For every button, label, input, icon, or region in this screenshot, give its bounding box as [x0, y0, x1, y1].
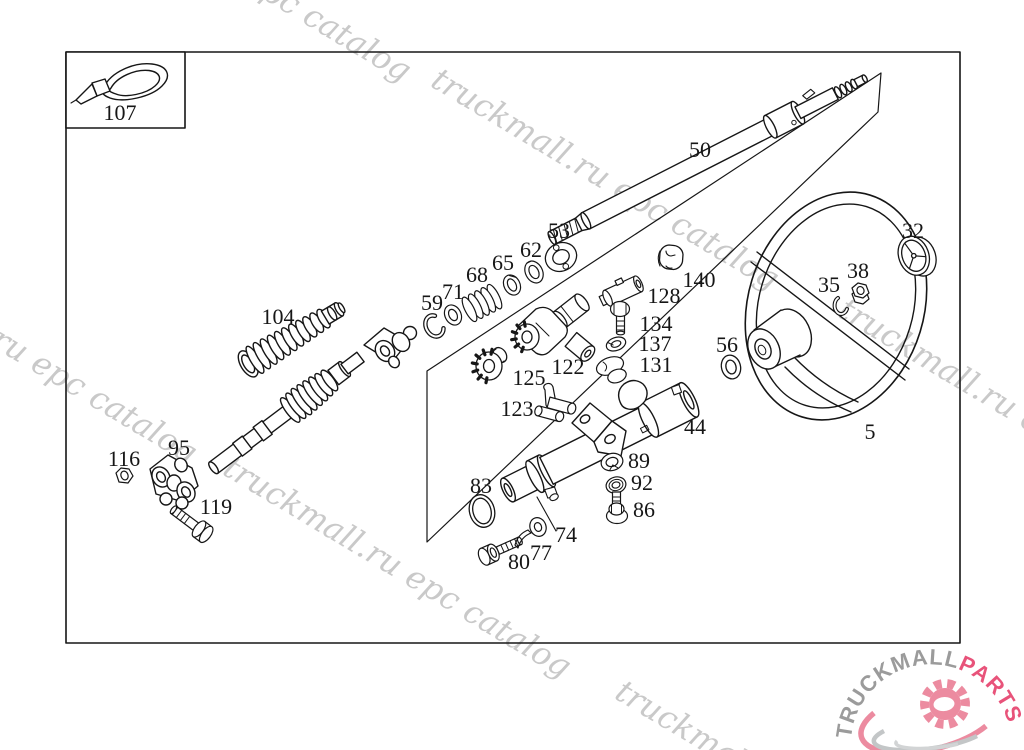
- part-label-38: 38: [847, 258, 869, 283]
- part-label-140: 140: [683, 267, 716, 292]
- part-label-44: 44: [684, 414, 706, 439]
- parts-diagram-page: truckmall.ru epc catalogtruckmall.ru epc…: [0, 0, 1024, 750]
- part-label-77: 77: [530, 540, 552, 565]
- part-label-65: 65: [492, 250, 514, 275]
- part-label-62: 62: [520, 237, 542, 262]
- part-label-92: 92: [631, 470, 653, 495]
- truckmall-parts-logo: TRUCKMALLPARTS: [831, 644, 1024, 750]
- watermark-5: truckmall.ru epc catalog: [609, 672, 970, 750]
- logo-swoosh-gray2: [896, 741, 958, 748]
- part-label-80: 80: [508, 549, 530, 574]
- part-62-ring: [521, 258, 547, 286]
- part-label-32: 32: [902, 218, 924, 243]
- part-71-ring: [441, 302, 465, 328]
- part-125-splined-hub: [472, 345, 509, 383]
- part-74-nut: [527, 515, 549, 538]
- part-label-59: 59: [421, 290, 443, 315]
- logo-gear-icon: [920, 679, 970, 729]
- part-label-131: 131: [640, 352, 673, 377]
- part-label-50: 50: [689, 137, 711, 162]
- part-53-bearing: [540, 237, 581, 276]
- part-137-washer: [604, 334, 627, 353]
- part-label-125: 125: [513, 365, 546, 390]
- part-label-95: 95: [168, 435, 190, 460]
- part-label-104: 104: [262, 304, 295, 329]
- part-label-122: 122: [552, 354, 585, 379]
- part-68-spring: [459, 283, 504, 324]
- part-86-bolt: [607, 492, 628, 524]
- part-38-nut: [852, 283, 869, 304]
- part-label-107: 107: [104, 100, 137, 125]
- part-label-123: 123: [501, 396, 534, 421]
- part-95-lower-ujoint: [148, 455, 198, 509]
- part-label-35: 35: [818, 272, 840, 297]
- part-56-ring: [719, 353, 744, 381]
- diagram-canvas: truckmall.ru epc catalogtruckmall.ru epc…: [0, 0, 1024, 750]
- part-label-56: 56: [716, 332, 738, 357]
- part-label-53: 53: [548, 218, 570, 243]
- part-140-coupling: [658, 245, 683, 270]
- part-label-83: 83: [470, 473, 492, 498]
- part-122-lock-housing: [512, 292, 598, 364]
- part-label-71: 71: [442, 279, 464, 304]
- part-label-128: 128: [648, 283, 681, 308]
- part-label-68: 68: [466, 262, 488, 287]
- part-label-119: 119: [200, 494, 232, 519]
- part-59-snap-ring: [422, 313, 446, 340]
- part-134-bolt: [611, 302, 630, 335]
- part-131-clamp: [594, 353, 628, 385]
- part-65-bushing: [500, 272, 524, 298]
- part-label-74: 74: [555, 522, 577, 547]
- part-label-5: 5: [865, 419, 876, 444]
- part-label-86: 86: [633, 497, 655, 522]
- part-95-upper-fork: [364, 327, 417, 370]
- part-label-116: 116: [108, 446, 140, 471]
